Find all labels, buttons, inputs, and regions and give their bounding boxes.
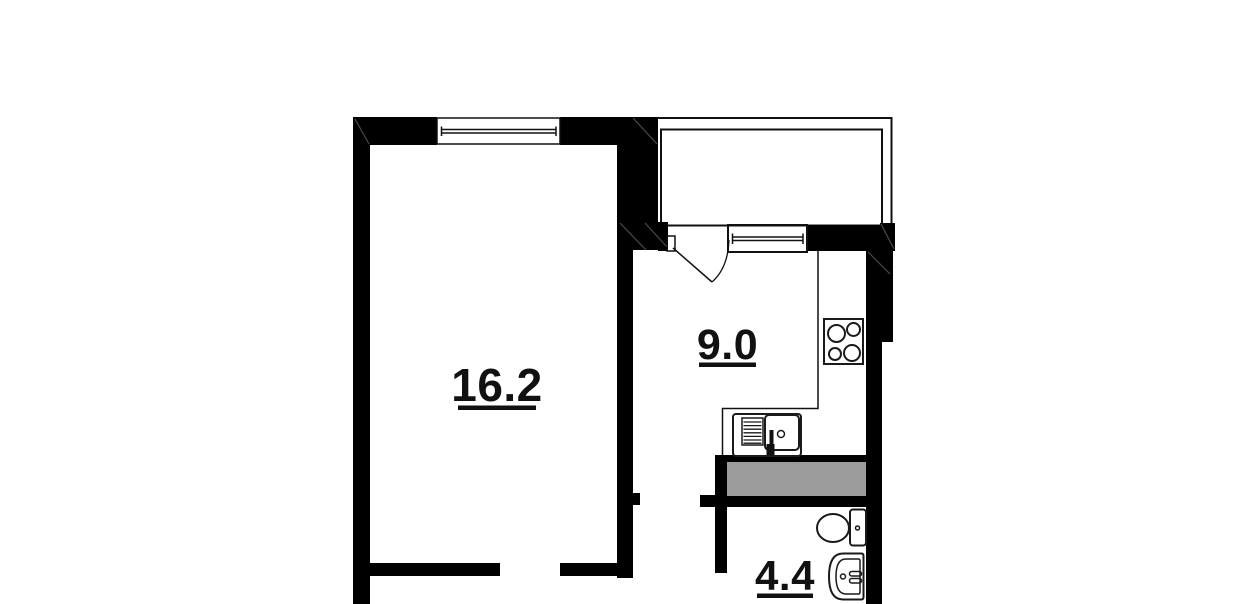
living-room-area-label: 16.2 [451,359,543,411]
wall-left [353,117,370,604]
sink-faucet [770,430,774,444]
wall-shaft-left [715,455,727,573]
kitchen-label-underline [699,363,756,368]
living-room-label-underline [458,406,536,411]
wall-living-bottom-left [368,563,500,576]
bathroom-sink-icon [829,554,864,600]
stove-icon [824,319,863,364]
floor-plan-canvas: 16.2 9.0 4.4 [0,0,1250,604]
toilet-bowl [817,514,849,542]
wall-right [866,342,882,604]
bathroom-label-underline [757,594,813,599]
sink-drainer-ridges [744,422,762,443]
toilet-tank [850,510,866,546]
sink-faucet-base [767,444,775,455]
wall-middle [617,250,633,578]
ventilation-shaft [727,462,866,496]
kitchen-sink-icon [733,414,801,456]
wall-shaft-bottom [700,495,866,507]
wall-top-mid [560,117,618,145]
wall-middle-tab [633,493,640,505]
bathroom-area-label: 4.4 [755,552,815,599]
floor-plan: 16.2 9.0 4.4 [0,0,1250,604]
wall-kitchen-top [807,225,880,251]
wall-living-bottom-right [560,563,618,576]
kitchen-area-label: 9.0 [697,321,758,369]
